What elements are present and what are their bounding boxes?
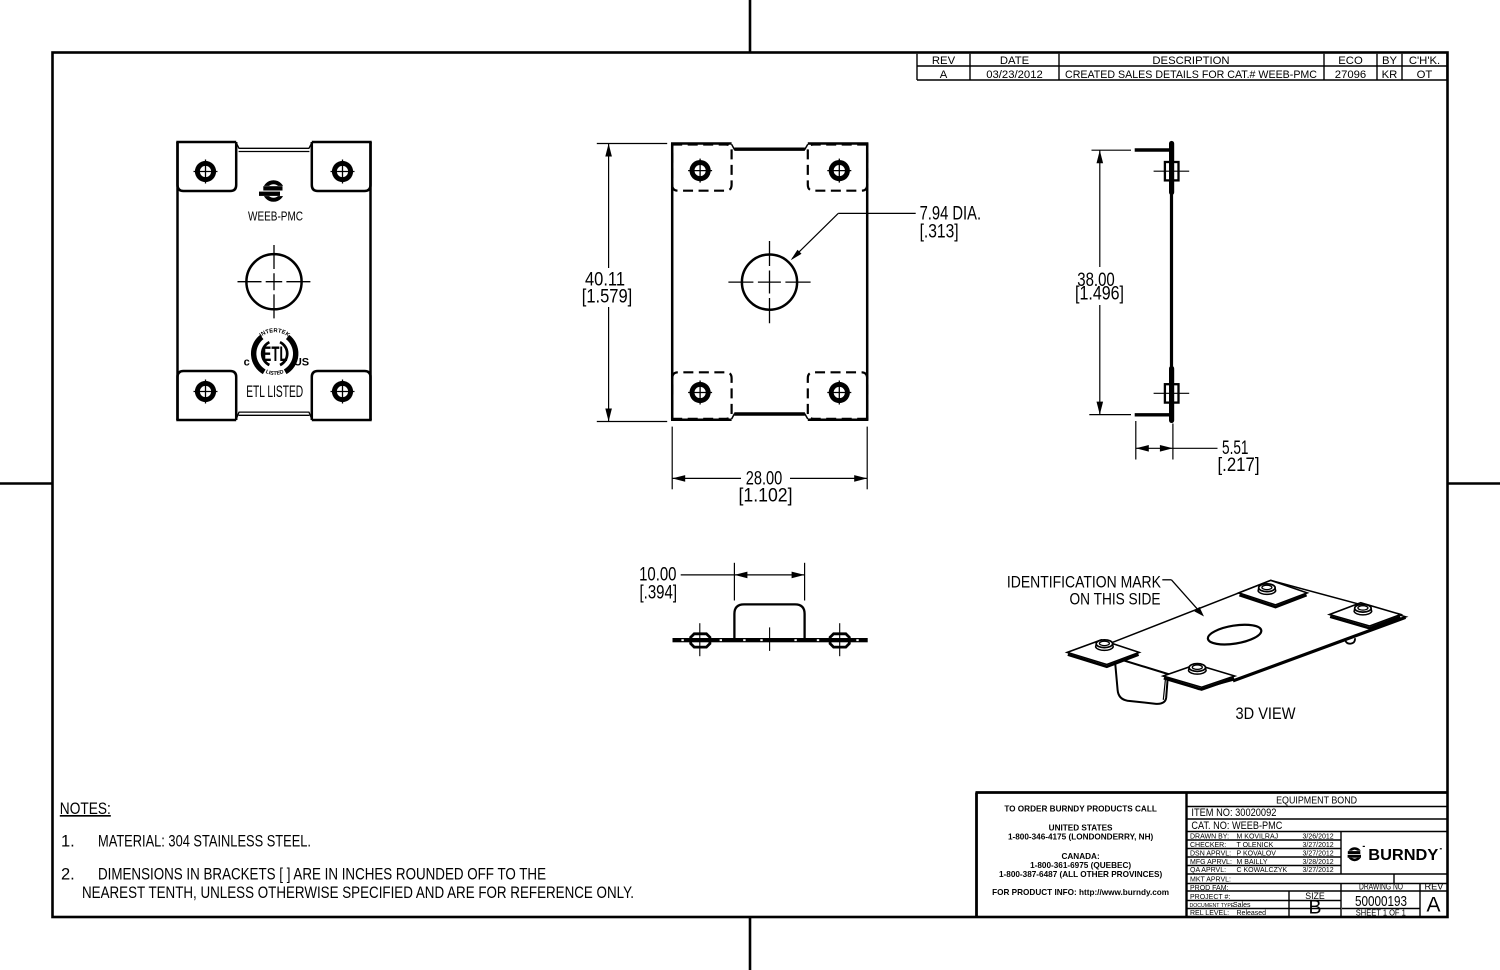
svg-text:M KOVILRAJ: M KOVILRAJ [1237, 833, 1279, 840]
svg-text:ETL LISTED: ETL LISTED [246, 383, 303, 401]
svg-text:3/27/2012: 3/27/2012 [1303, 850, 1334, 857]
svg-text:NEAREST TENTH, UNLESS OTHERWIS: NEAREST TENTH, UNLESS OTHERWISE SPECIFIE… [82, 884, 634, 902]
svg-text:DRAWING NO: DRAWING NO [1359, 882, 1403, 892]
svg-text:OT: OT [1417, 69, 1433, 81]
svg-text:SHEET 1 OF 1: SHEET 1 OF 1 [1356, 909, 1406, 918]
svg-text:DSN APRVL:: DSN APRVL: [1190, 850, 1231, 857]
svg-text:MFG APRVL:: MFG APRVL: [1190, 859, 1232, 866]
svg-text:ON THIS SIDE: ON THIS SIDE [1070, 590, 1161, 609]
svg-text:M BAILLY: M BAILLY [1237, 859, 1268, 866]
svg-text:Released: Released [1237, 910, 1267, 917]
svg-text:1-800-346-4175 (LONDONDERRY, N: 1-800-346-4175 (LONDONDERRY, NH) [1008, 832, 1154, 841]
svg-text:BURNDY: BURNDY [1368, 847, 1439, 864]
svg-text:UNITED STATES: UNITED STATES [1049, 823, 1113, 832]
svg-text:1-800-387-6487 (ALL OTHER PROV: 1-800-387-6487 (ALL OTHER PROVINCES) [999, 870, 1162, 879]
svg-text:QA APRVL:: QA APRVL: [1190, 867, 1226, 874]
svg-text:B: B [1308, 897, 1321, 919]
svg-text:27096: 27096 [1335, 69, 1366, 81]
svg-text:[1.496]: [1.496] [1075, 284, 1124, 305]
svg-text:[1.102]: [1.102] [739, 486, 793, 507]
svg-text:P KOVALOV: P KOVALOV [1237, 850, 1277, 857]
svg-text:3D VIEW: 3D VIEW [1236, 705, 1296, 723]
svg-text:DATE: DATE [1000, 55, 1030, 67]
svg-text:3/28/2012: 3/28/2012 [1303, 859, 1334, 866]
svg-text:REL LEVEL:: REL LEVEL: [1190, 910, 1229, 917]
svg-text:A: A [1426, 894, 1440, 917]
svg-text:PROJECT #:: PROJECT #: [1190, 894, 1230, 901]
svg-text:US: US [294, 356, 309, 368]
svg-text:MKT APRVL:: MKT APRVL: [1190, 876, 1231, 883]
svg-text:REV: REV [1425, 882, 1445, 892]
svg-text:C'H'K.: C'H'K. [1409, 55, 1440, 67]
svg-text:MATERIAL: 304 STAINLESS STEEL.: MATERIAL: 304 STAINLESS STEEL. [98, 833, 311, 851]
svg-text:C KOWALCZYK: C KOWALCZYK [1237, 867, 1288, 874]
svg-text:Sales: Sales [1233, 902, 1251, 909]
svg-text:BY: BY [1382, 55, 1398, 67]
svg-text:TO ORDER BURNDY PRODUCTS CALL: TO ORDER BURNDY PRODUCTS CALL [1004, 805, 1157, 814]
svg-text:[.217]: [.217] [1218, 455, 1260, 476]
svg-text:3/26/2012: 3/26/2012 [1303, 833, 1334, 840]
svg-text:FOR PRODUCT INFO: http://www.b: FOR PRODUCT INFO: http://www.burndy.com [992, 888, 1169, 897]
svg-text:CANADA:: CANADA: [1061, 852, 1099, 861]
svg-text:3/27/2012: 3/27/2012 [1303, 842, 1334, 849]
svg-text:T OLENICK: T OLENICK [1237, 842, 1274, 849]
svg-text:ITEM NO: 30020092: ITEM NO: 30020092 [1191, 807, 1276, 819]
svg-text:50000193: 50000193 [1355, 894, 1407, 910]
svg-text:DOCUMENT TYPE:: DOCUMENT TYPE: [1190, 903, 1236, 909]
svg-text:KR: KR [1382, 69, 1398, 81]
svg-text:[1.579]: [1.579] [582, 286, 633, 307]
svg-text:NOTES:: NOTES: [60, 800, 111, 818]
svg-text:ETL: ETL [263, 343, 288, 366]
svg-text:2.: 2. [61, 866, 75, 884]
svg-text:3/27/2012: 3/27/2012 [1303, 867, 1334, 874]
svg-text:REV: REV [932, 55, 956, 67]
svg-text:CAT. NO: WEEB-PMC: CAT. NO: WEEB-PMC [1191, 820, 1282, 832]
svg-text:PROD FAM:: PROD FAM: [1190, 885, 1229, 892]
svg-text:1-800-361-6975 (QUEBEC): 1-800-361-6975 (QUEBEC) [1030, 861, 1131, 870]
svg-text:[.394]: [.394] [640, 583, 678, 604]
svg-text:A: A [940, 69, 948, 81]
svg-text:03/23/2012: 03/23/2012 [986, 69, 1043, 81]
svg-text:DIMENSIONS IN BRACKETS [ ] AR: DIMENSIONS IN BRACKETS [ ] ARE IN INCHES… [98, 866, 546, 884]
svg-text:CHECKER:: CHECKER: [1190, 842, 1226, 849]
svg-text:DESCRIPTION: DESCRIPTION [1152, 55, 1229, 67]
svg-text:ECO: ECO [1338, 55, 1363, 67]
svg-text:[.313]: [.313] [920, 221, 959, 242]
svg-text:WEEB-PMC: WEEB-PMC [248, 209, 303, 224]
svg-text:1.: 1. [61, 833, 75, 851]
svg-text:DRAWN BY:: DRAWN BY: [1190, 833, 1229, 840]
svg-text:EQUIPMENT BOND: EQUIPMENT BOND [1276, 795, 1357, 807]
svg-text:IDENTIFICATION MARK: IDENTIFICATION MARK [1007, 572, 1162, 591]
svg-text:c: c [244, 356, 250, 368]
svg-text:CREATED SALES DETAILS FOR CAT.: CREATED SALES DETAILS FOR CAT.# WEEB-PMC [1065, 69, 1317, 81]
